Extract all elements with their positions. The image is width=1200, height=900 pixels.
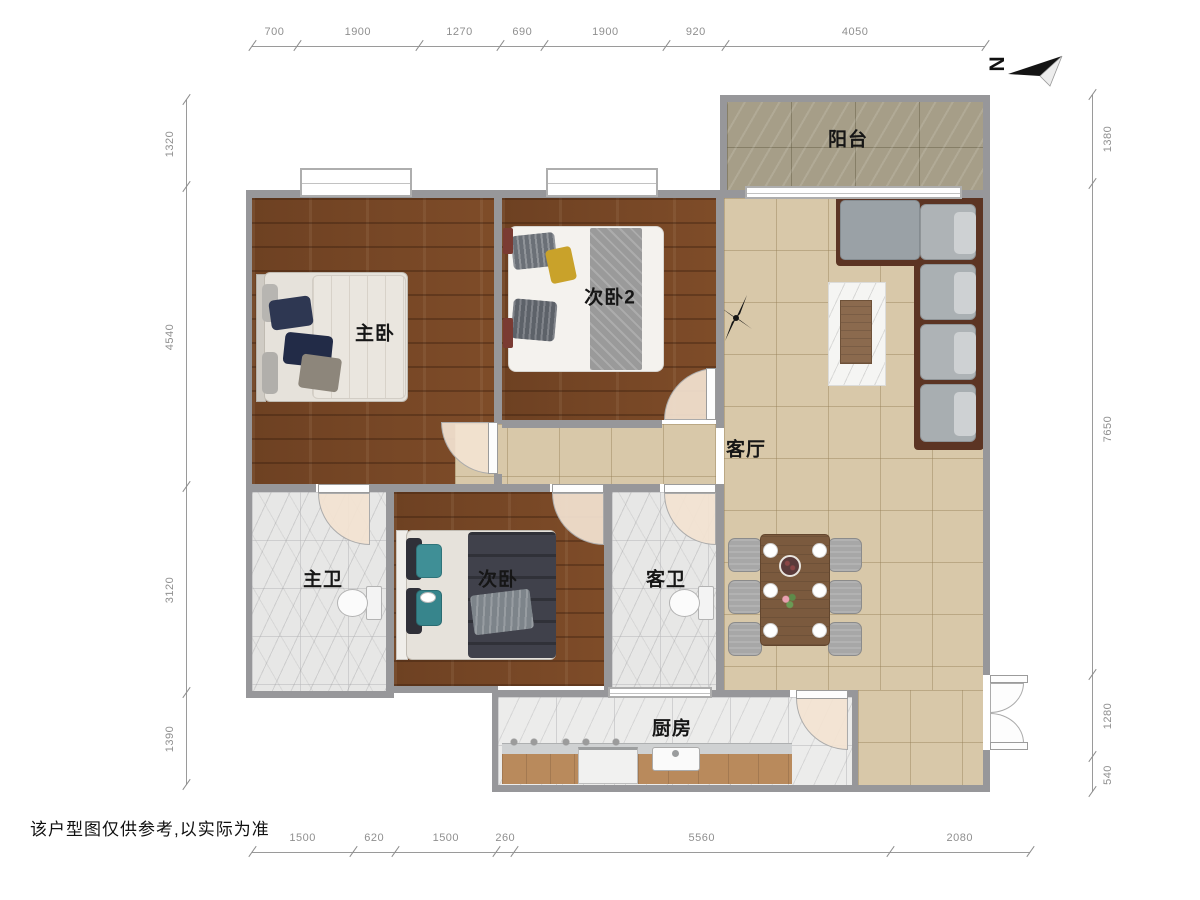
bedroom3-door [552,484,604,493]
dining-chair-left-3 [728,622,762,656]
coffee-table [840,300,872,364]
dimension-line-left [186,100,187,785]
wall [386,484,394,692]
entrance-door-swing-top [990,683,1024,713]
master-bedroom-door [488,422,498,474]
guest-bath-toilet [669,589,700,617]
bedroom2-nightstand-bottom [503,318,513,348]
wall [852,690,858,785]
dining-chair-right-2 [828,580,862,614]
dining-chair-right-1 [828,538,862,572]
sofa-back-pillow-3 [954,332,976,374]
dimension-label-bottom-5: 2080 [947,832,973,844]
dimension-label-bottom-0: 1500 [289,832,315,844]
guest-bath-kitchen-window [608,687,712,698]
kitchen-island-appliance [578,747,638,784]
plate-6 [812,623,827,638]
room-label-living-room: 客厅 [726,435,766,462]
room-label-master-bath: 主卫 [303,565,343,592]
wall [720,95,727,192]
entrance-door-bottom [990,742,1028,750]
dimension-label-right-0: 1380 [1102,126,1114,152]
dining-chair-left-2 [728,580,762,614]
guest-bath-toilet-tank [698,586,714,620]
dimension-label-top-2: 1270 [446,26,472,38]
dimension-label-top-0: 700 [265,26,285,38]
centerpiece-bowl [779,555,801,577]
master-bath-toilet [337,589,368,617]
dimension-label-right-2: 1280 [1102,703,1114,729]
sofa-chaise-cushion [840,200,920,260]
kitchen-faucet [672,750,679,757]
wall [246,484,316,492]
balcony-sliding-window [745,186,962,199]
dimension-label-top-5: 920 [686,26,706,38]
plate-5 [812,583,827,598]
bedroom2-nightstand-top [503,228,513,254]
bedroom2-window [546,168,658,197]
dimension-line-top [252,46,985,47]
wall [492,691,498,792]
wall [604,484,660,492]
dimension-label-bottom-4: 5560 [689,832,715,844]
wall [716,484,724,691]
wall [386,686,498,693]
dimension-label-left-0: 1320 [164,130,176,156]
entry-floor [858,690,983,785]
wall [494,474,502,484]
wall [960,190,984,198]
sofa-back-pillow-2 [954,272,976,314]
dimension-label-top-1: 1900 [345,26,371,38]
dimension-label-right-1: 7650 [1102,416,1114,442]
dimension-label-bottom-2: 1500 [433,832,459,844]
room-label-kitchen: 厨房 [652,714,692,741]
dimension-label-top-6: 4050 [842,26,868,38]
plate-2 [763,583,778,598]
dimension-label-top-3: 690 [512,26,532,38]
wall [502,420,662,428]
dimension-line-bottom [252,852,1030,853]
dimension-label-left-1: 4540 [164,324,176,350]
wall [498,690,608,697]
room-label-guest-bath: 客卫 [646,565,686,592]
dimension-label-left-3: 1390 [164,726,176,752]
plate-3 [763,623,778,638]
wall [246,691,394,698]
wall [370,484,550,492]
dimension-label-right-3: 540 [1102,765,1114,785]
master-bath-toilet-tank [366,586,382,620]
north-arrow-icon [1006,48,1066,94]
bedroom3-teal-pillow-1 [416,544,442,578]
sofa-back-pillow-1 [954,212,976,254]
dimension-label-left-2: 3120 [164,577,176,603]
master-bed-side-pillow-bottom [262,352,278,394]
disclaimer-text: 该户型图仅供参考,以实际为准 [30,815,270,840]
master-bath-door [318,484,370,493]
wall [983,95,990,675]
entrance-door-top [990,675,1028,683]
entrance-opening [983,675,990,750]
bedroom3-gray-throw [470,588,534,635]
wall [720,95,990,102]
room-label-balcony: 阳台 [828,125,868,152]
kitchen-cabinet-left [502,754,578,784]
master-bed-navy-pillow-1 [268,295,314,331]
wall [492,785,990,792]
room-label-master-bedroom: 主卧 [355,319,395,346]
dimension-label-bottom-1: 620 [364,832,384,844]
master-bed-throw [298,353,342,392]
dimension-line-right [1092,95,1093,792]
floor-plan: 阳台 主卧 次卧2 客厅 主卫 次卧 客卫 厨房 N 该户型图仅供参考,以实际为… [0,0,1200,900]
plate-4 [812,543,827,558]
dimension-label-bottom-3: 260 [495,832,515,844]
plate-1 [763,543,778,558]
bedroom2-door [706,368,716,420]
sofa-back-pillow-4 [954,392,976,436]
wall [604,484,612,690]
entrance-door-swing-bottom [990,713,1024,743]
wall [712,690,790,697]
wall [716,190,724,428]
dining-chair-right-3 [828,622,862,656]
wall [246,190,252,698]
bedroom3-mirror-tray [420,592,436,603]
bedroom2-pillow-2 [510,298,557,342]
master-bedroom-window [300,168,412,197]
kitchen-stove-knobs [508,738,628,746]
north-label: N [984,56,1008,71]
centerpiece-flowers [781,592,797,610]
kitchen-door [796,690,848,699]
dimension-label-top-4: 1900 [592,26,618,38]
room-label-bedroom2: 次卧2 [584,283,636,310]
dining-chair-left-1 [728,538,762,572]
room-label-bedroom3: 次卧 [478,565,518,592]
wall [494,190,502,424]
wall [720,190,745,198]
guest-bath-door [664,484,716,493]
